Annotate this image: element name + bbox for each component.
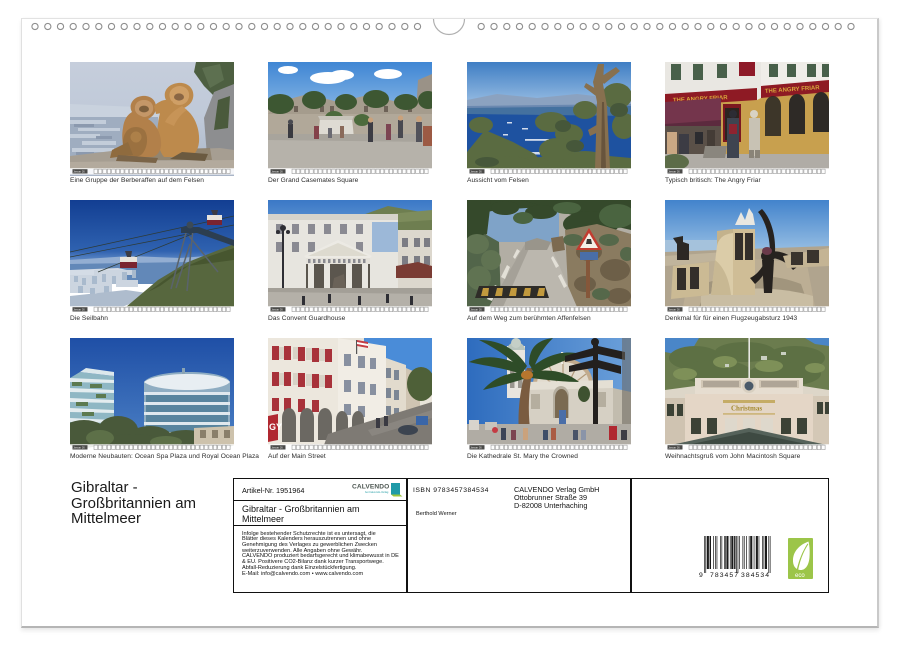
svg-text:CALVENDO: CALVENDO [352, 484, 389, 491]
svg-text:bei Calvendo-Verlag: bei Calvendo-Verlag [365, 490, 389, 494]
svg-text:9: 9 [699, 572, 703, 579]
svg-text:eco: eco [795, 573, 805, 579]
svg-text:384534: 384534 [741, 572, 769, 579]
svg-text:Christmas: Christmas [731, 405, 762, 413]
svg-text:783457: 783457 [710, 572, 738, 579]
